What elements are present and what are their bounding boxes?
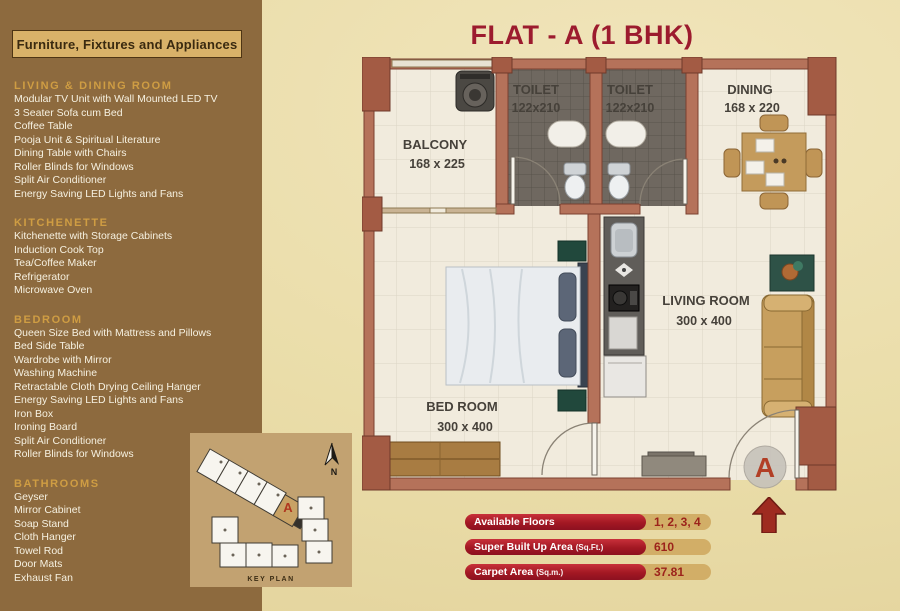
info-bar: Carpet Area (Sq.m.) 37.81 [465,564,711,580]
kitchen-appliance [609,317,637,349]
north-arrow-icon: N [325,443,339,477]
room-label: TOILET [513,82,559,97]
info-bar: Super Built Up Area (Sq.Ft.) 610 [465,539,711,555]
room-dims: 168 x 225 [409,157,465,171]
entrance-door [795,410,799,478]
room-dims: 168 x 220 [724,101,780,115]
room-label: LIVING ROOM [662,293,749,308]
list-item: Bed Side Table [14,340,258,354]
toilet2-door [683,159,687,204]
list-item: Modular TV Unit with Wall Mounted LED TV [14,93,258,107]
list-item: Kitchenette with Storage Cabinets [14,230,258,244]
room-label: DINING [727,82,773,97]
list-item: Microwave Oven [14,284,258,298]
entry-arrow-icon [752,497,786,533]
section-title: LIVING & DINING ROOM [14,80,258,92]
list-item: Refrigerator [14,271,258,285]
info-bar-label: Carpet Area (Sq.m.) [465,564,646,580]
room-dims: 300 x 400 [437,420,493,434]
page-title: FLAT - A (1 BHK) [432,20,732,51]
side-table [770,255,814,291]
refrigerator [604,356,646,397]
key-plan-unit-label: A [283,500,293,515]
section-title: BEDROOM [14,314,258,326]
north-label: N [331,467,338,477]
sidebar-section: KITCHENETTE Kitchenette with Storage Cab… [14,217,258,298]
unit-marker-label: A [755,452,775,483]
info-bar-value: 610 [654,539,674,555]
info-bar-label: Super Built Up Area (Sq.Ft.) [465,539,646,555]
list-item: Induction Cook Top [14,244,258,258]
balcony-window [392,60,492,67]
room-dims: 300 x 400 [676,314,732,328]
list-item: Energy Saving LED Lights and Fans [14,188,258,202]
tv-unit [642,452,706,476]
list-item: 3 Seater Sofa cum Bed [14,107,258,121]
info-bar-value: 37.81 [654,564,684,580]
info-bars: Available Floors 1, 2, 3, 4 Super Built … [465,514,711,589]
unit-marker: A [744,446,786,488]
list-item: Wardrobe with Mirror [14,354,258,368]
key-plan-caption: KEY PLAN [247,576,294,583]
room-label: TOILET [607,82,653,97]
info-bar-label: Available Floors [465,514,646,530]
sidebar-header: Furniture, Fixtures and Appliances [12,30,242,58]
list-item: Dining Table with Chairs [14,147,258,161]
list-item: Coffee Table [14,120,258,134]
key-plan-panel: A N KEY PLAN [190,433,352,587]
toilet1-door [511,157,515,204]
section-items: Modular TV Unit with Wall Mounted LED TV… [14,93,258,201]
washing-machine [456,71,494,111]
info-bar-value: 1, 2, 3, 4 [654,514,701,530]
bedside-table-bottom [558,390,586,411]
section-title: KITCHENETTE [14,217,258,229]
sidebar-section: LIVING & DINING ROOM Modular TV Unit wit… [14,80,258,201]
bedside-table-top [558,241,586,261]
room-dims: 122x210 [606,101,655,115]
balcony-railing [376,208,496,213]
list-item: Split Air Conditioner [14,174,258,188]
key-plan-drawing: A N KEY PLAN [190,433,352,587]
list-item: Pooja Unit & Spiritual Literature [14,134,258,148]
sofa [762,295,814,417]
bedroom-door [592,423,597,475]
list-item: Roller Blinds for Windows [14,161,258,175]
list-item: Energy Saving LED Lights and Fans [14,394,258,408]
key-plan-building [197,449,332,567]
bed [446,263,590,387]
list-item: Queen Size Bed with Mattress and Pillows [14,327,258,341]
room-label: BED ROOM [426,399,498,414]
kitchenette-counter [604,217,646,397]
list-item: Tea/Coffee Maker [14,257,258,271]
info-bar-label-suffix: (Sq.Ft.) [576,543,604,552]
list-item: Washing Machine [14,367,258,381]
info-bar-label-suffix: (Sq.m.) [536,568,563,577]
wardrobe [380,442,500,476]
room-dims: 122x210 [512,101,561,115]
list-item: Iron Box [14,408,258,422]
info-bar: Available Floors 1, 2, 3, 4 [465,514,711,530]
list-item: Retractable Cloth Drying Ceiling Hanger [14,381,258,395]
room-label: BALCONY [403,137,468,152]
floor-plan: A BALCONY 168 x 225 TOILET 122x210 TOILE… [362,57,838,492]
section-items: Kitchenette with Storage Cabinets Induct… [14,230,258,298]
